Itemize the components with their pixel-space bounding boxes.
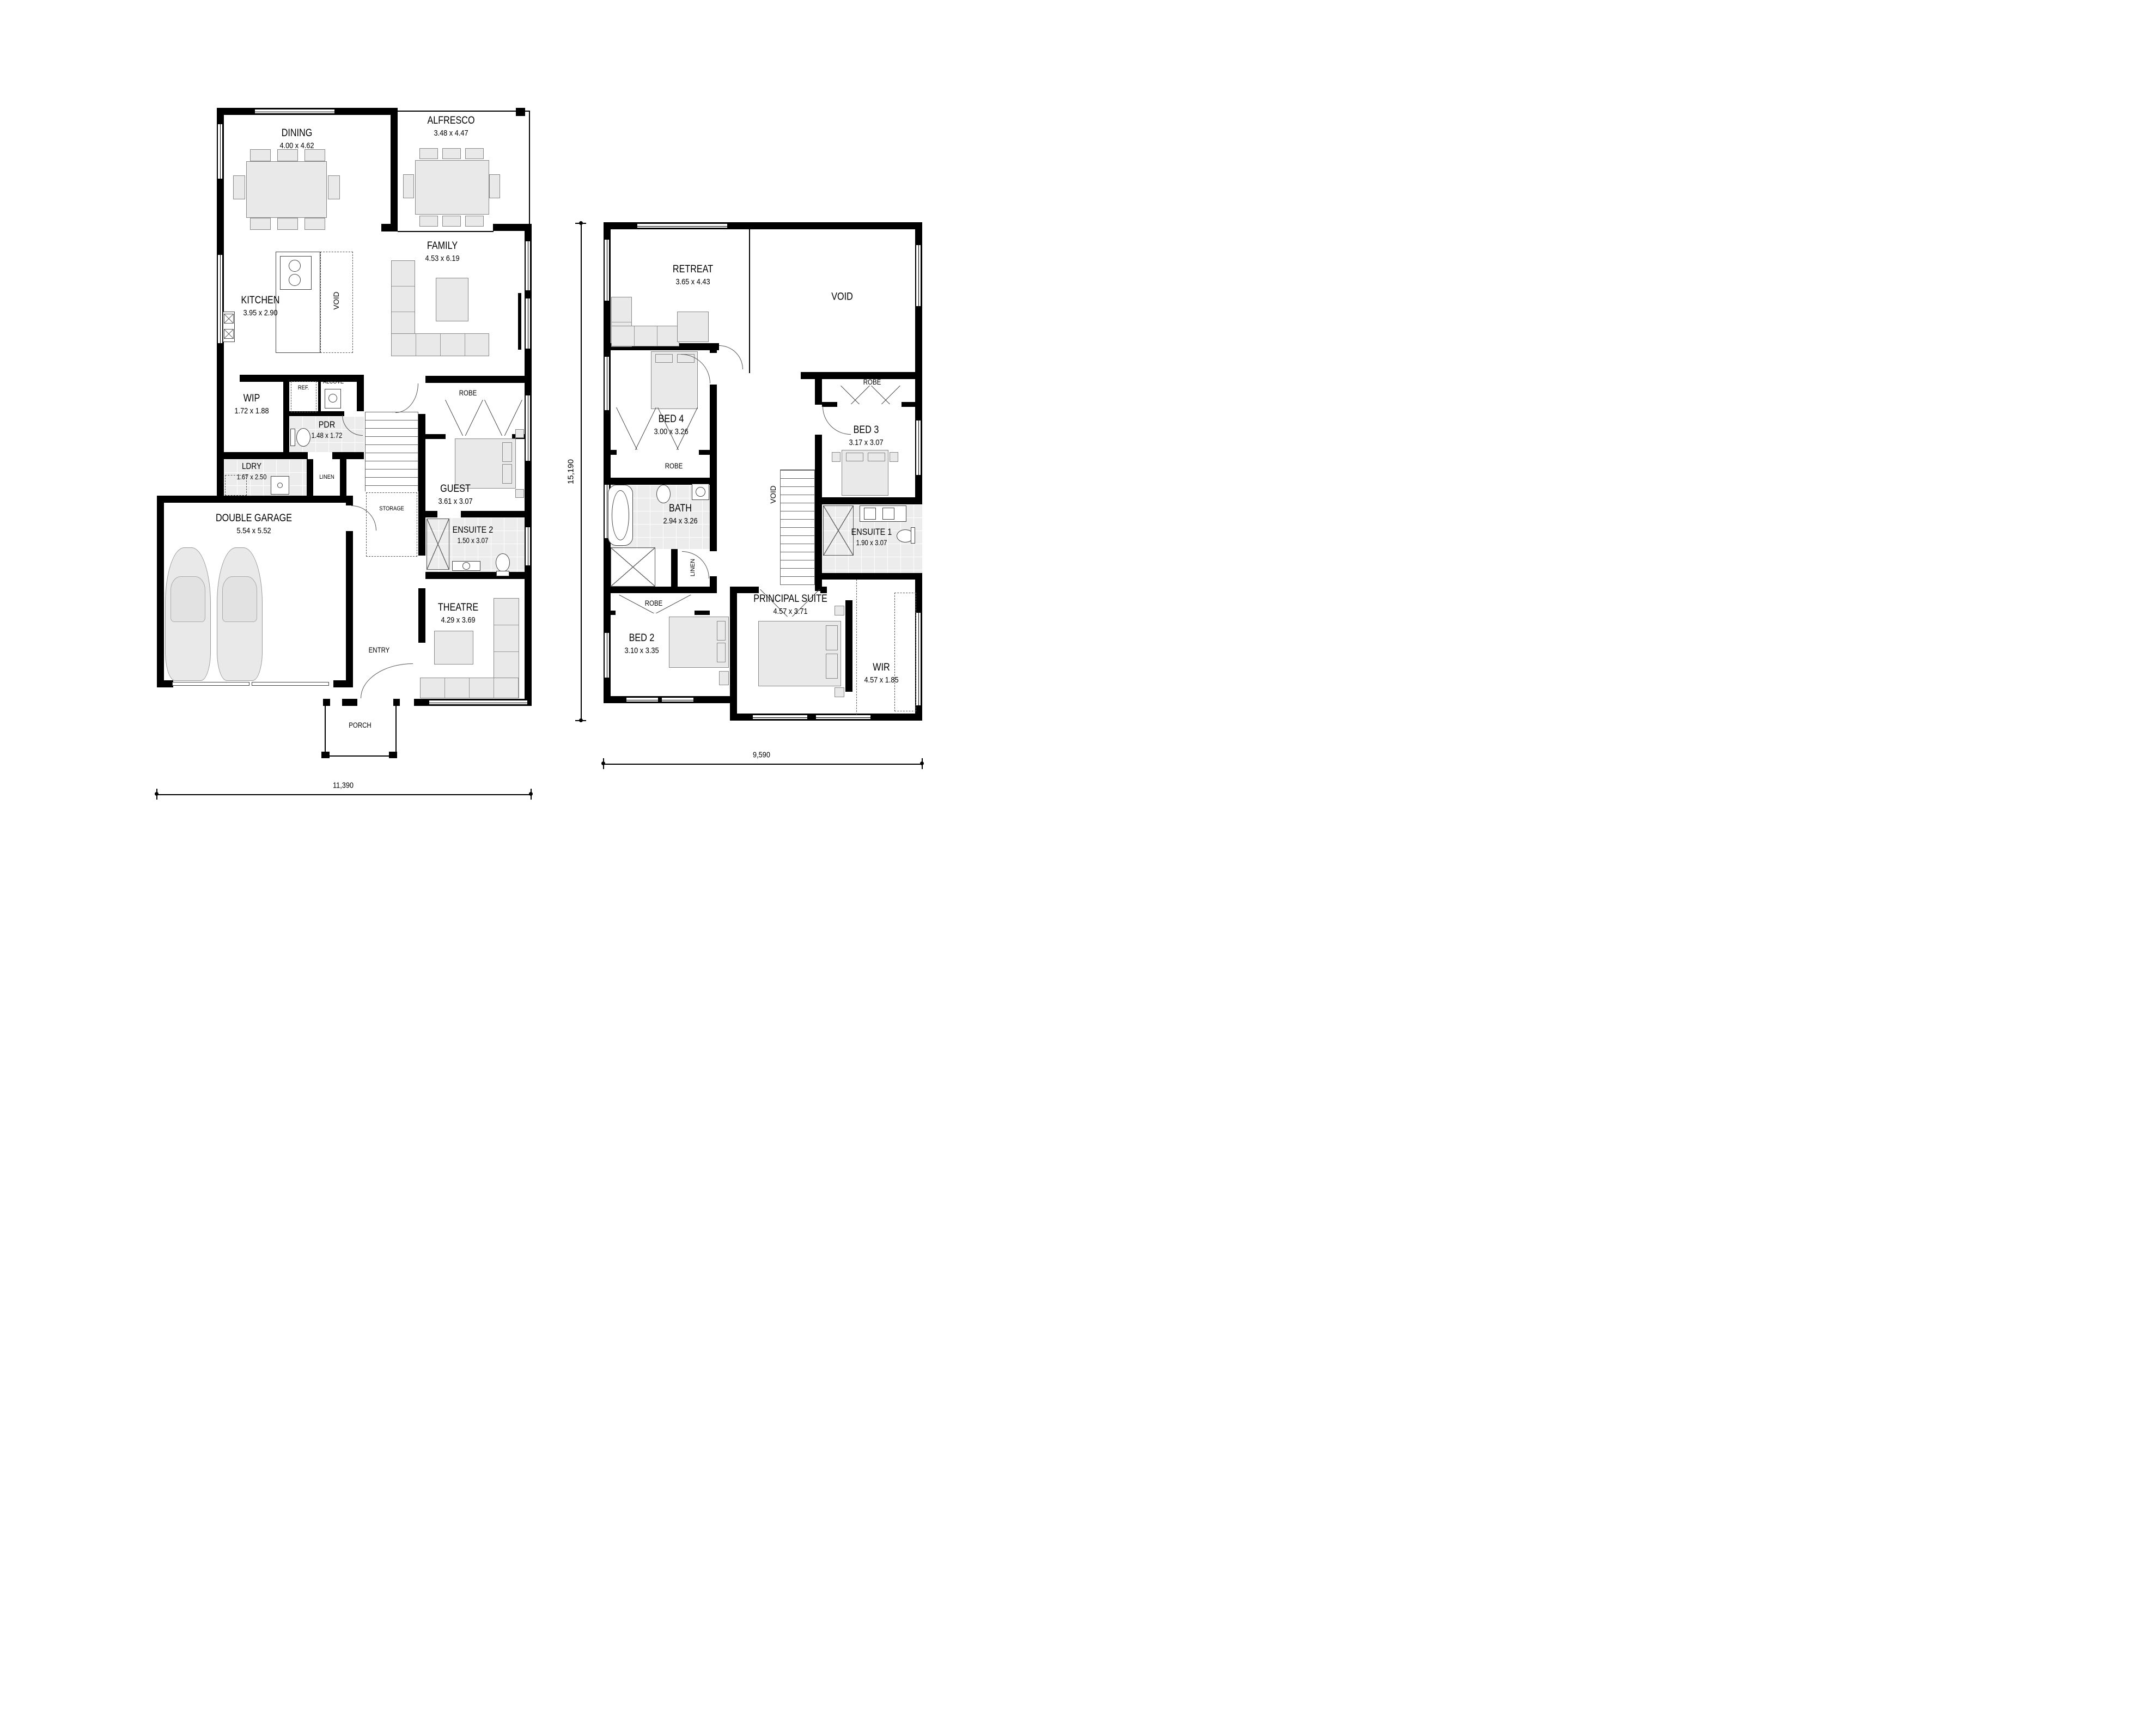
sofa (611, 326, 679, 346)
wall (699, 450, 710, 455)
toilet-tank (911, 527, 915, 544)
window (662, 697, 693, 702)
dimension-line (581, 223, 582, 721)
wall (710, 576, 717, 587)
window (604, 240, 610, 301)
sink-bowl (882, 508, 894, 520)
room-label-wir: WIR4.57 x 1.85 (864, 661, 898, 685)
first-floor-plan: RETREAT3.65 x 4.43 VOID BED 43.00 x 3.26… (0, 0, 1078, 863)
retreat-door-swing (719, 345, 743, 369)
dimension-dot (579, 221, 583, 225)
wall (710, 478, 717, 551)
shower (823, 505, 854, 556)
wall (730, 587, 737, 696)
label-robe-bed2: ROBE (645, 599, 663, 608)
bedside-table (835, 687, 844, 697)
robe-doors (870, 386, 901, 404)
pillow (868, 453, 885, 461)
wall (710, 343, 717, 353)
pillow (826, 654, 838, 679)
pillow (717, 621, 726, 641)
window (916, 245, 921, 306)
wall (815, 573, 922, 580)
label-robe-bed4: ROBE (665, 461, 683, 471)
wall (815, 372, 822, 405)
bed4-door-swing (681, 354, 710, 383)
wall (671, 549, 678, 587)
window (916, 613, 921, 705)
wall (695, 611, 710, 615)
wall (845, 600, 852, 692)
pillow (717, 643, 726, 662)
room-label-bed2: BED 23.10 x 3.35 (624, 632, 659, 656)
label-stair-void: VOID (769, 485, 778, 503)
bedside-table (835, 606, 844, 615)
wall (710, 385, 717, 478)
stairs (780, 470, 815, 585)
wardrobe (894, 593, 916, 711)
window (816, 715, 870, 720)
dimension-label-first-height: 15,190 (565, 459, 576, 484)
label-void: VOID (831, 291, 852, 304)
wall (604, 611, 616, 615)
room-label-ensuite1: ENSUITE 11.90 x 3.07 (851, 526, 892, 548)
bathtub-inner (612, 490, 629, 540)
pillow (655, 354, 673, 363)
bedside-table (719, 671, 729, 685)
room-label-principal: PRINCIPAL SUITE4.57 x 3.71 (753, 593, 827, 617)
label-linen: LINEN (689, 559, 697, 576)
window (604, 357, 610, 410)
sink-bowl (696, 487, 705, 497)
room-label-bed3: BED 33.17 x 3.07 (849, 424, 883, 448)
pillow (826, 625, 838, 650)
dimension-label-first-width: 9,590 (753, 749, 770, 760)
void-outline (749, 229, 750, 373)
room-label-bath: BATH2.94 x 3.26 (663, 502, 697, 526)
dimension-dot (579, 718, 583, 722)
sink-bowl (864, 508, 876, 520)
wall (604, 587, 717, 593)
robe-doors (616, 407, 657, 450)
dimension-line (604, 764, 922, 765)
room-label-retreat: RETREAT3.65 x 4.43 (673, 263, 713, 287)
wall (815, 435, 822, 591)
wall (604, 450, 617, 455)
wir-boundary (856, 580, 857, 715)
window (637, 223, 727, 228)
window (916, 420, 921, 475)
window (604, 633, 610, 678)
wall (902, 402, 922, 407)
floor-plan-canvas: DINING4.00 x 4.62 ALFRESCO3.48 x 4.47 FA… (0, 0, 1078, 863)
label-robe-bed3: ROBE (863, 377, 881, 387)
window (626, 697, 658, 702)
room-label-bed4: BED 43.00 x 3.26 (654, 413, 688, 437)
shower (611, 547, 655, 587)
window (753, 715, 807, 720)
bedside-table (832, 452, 841, 462)
bedside-table (890, 452, 898, 462)
bed3-door-swing (823, 406, 851, 435)
toilet-bowl (656, 485, 671, 503)
dimension-dot (601, 761, 605, 765)
pillow (846, 453, 863, 461)
dimension-dot (920, 761, 924, 765)
rug (677, 312, 709, 342)
wall (822, 497, 922, 504)
robe-doors (840, 386, 870, 404)
